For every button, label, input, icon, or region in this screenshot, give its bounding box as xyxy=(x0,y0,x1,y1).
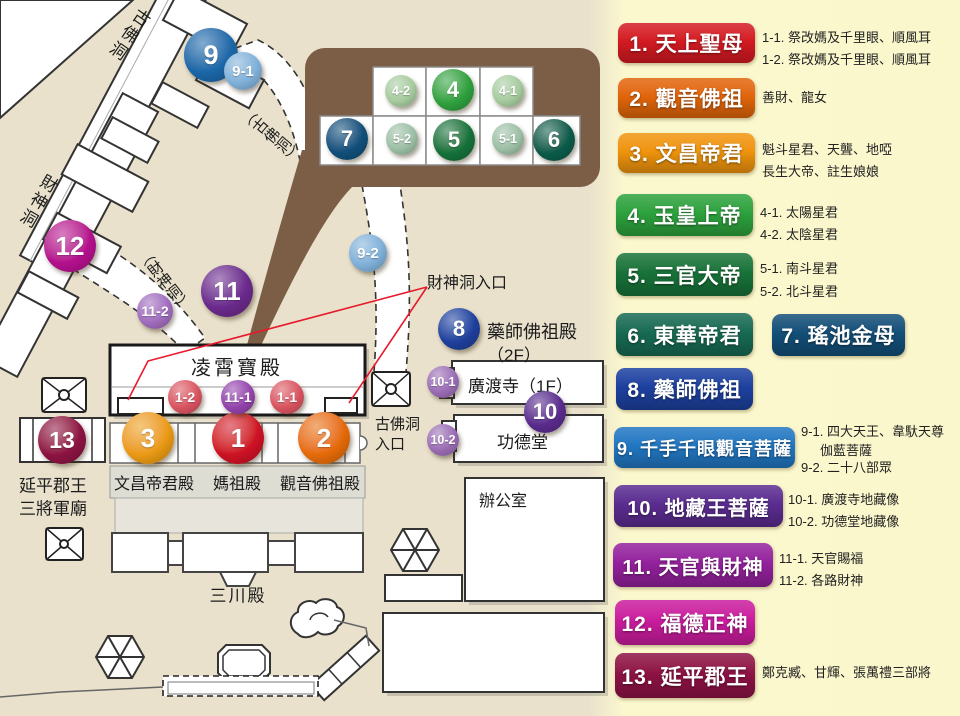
legend-note-9-2: 9-2. 二十八部眾 xyxy=(801,457,892,476)
legend-note-3-1: 魁斗星君、天聾、地啞 xyxy=(762,139,892,158)
legend-note-4-1: 4-1. 太陽星君 xyxy=(760,202,838,221)
legend-note-4-2: 4-2. 太陰星君 xyxy=(760,224,838,243)
lingxiao-hall-label: 凌霄寶殿 xyxy=(191,352,283,381)
sanchuan-hall-building xyxy=(112,533,363,586)
marker-11: 11 xyxy=(201,265,253,317)
marker-10-1: 10-1 xyxy=(427,366,459,398)
legend-item-12: 12. 福德正神 xyxy=(615,600,755,645)
yanping-label-line1: 延平郡王 xyxy=(19,472,87,497)
legend-item-10: 10. 地藏王菩薩 xyxy=(614,485,783,527)
marker-13: 13 xyxy=(38,416,86,464)
marker-9-1: 9-1 xyxy=(224,52,262,90)
marker-4: 4 xyxy=(432,69,474,111)
rock-garden-icon xyxy=(291,599,344,637)
marker-4-2: 4-2 xyxy=(385,75,417,107)
office-label: 辦公室 xyxy=(479,487,527,511)
legend-item-11: 11. 天官與財神 xyxy=(613,543,773,587)
legend-item-13: 13. 延平郡王 xyxy=(615,653,755,698)
legend-item-2: 2. 觀音佛祖 xyxy=(618,78,755,118)
marker-8: 8 xyxy=(438,308,480,350)
marker-11-1: 11-1 xyxy=(221,380,255,414)
marker-5-2: 5-2 xyxy=(386,123,418,155)
marker-11-2: 11-2 xyxy=(137,293,173,329)
caishendong-entrance-label: 財神洞入口 xyxy=(427,269,507,293)
marker-7: 7 xyxy=(326,118,368,160)
mazu-hall-label: 媽祖殿 xyxy=(213,470,261,494)
legend-item-5: 5. 三官大帝 xyxy=(616,253,753,296)
hexagon-umbrella-east xyxy=(391,529,439,571)
legend-note-5-1: 5-1. 南斗星君 xyxy=(760,258,838,277)
marker-6: 6 xyxy=(533,119,575,161)
wenchang-hall-label: 文昌帝君殿 xyxy=(114,470,194,494)
legend-item-6: 6. 東華帝君 xyxy=(616,313,753,356)
legend-note-2: 善財、龍女 xyxy=(762,87,827,106)
temple-map: 古佛洞 財神洞 （古佛洞） （財神洞） 凌霄寶殿 文昌帝君殿 媽祖殿 觀音佛祖殿… xyxy=(0,0,960,716)
legend-note-11-2: 11-2. 各路財神 xyxy=(779,570,863,589)
marker-12: 12 xyxy=(44,220,96,272)
marker-5: 5 xyxy=(433,119,475,161)
legend-note-1-2: 1-2. 祭改媽及千里眼、順風耳 xyxy=(762,49,931,68)
gufodong-entrance-label-line1: 古佛洞 xyxy=(375,413,420,434)
south-pavilion-icon xyxy=(46,528,83,560)
gufodong-entrance-label-line2: 入口 xyxy=(375,433,405,454)
marker-9-2: 9-2 xyxy=(349,234,387,272)
yaoshi-hall-floor-label: （2F） xyxy=(487,341,541,366)
marker-2: 2 xyxy=(298,412,350,464)
map-drawing xyxy=(0,0,960,716)
marker-5-1: 5-1 xyxy=(492,123,524,155)
gufodong-entrance-pavilion-icon xyxy=(372,372,410,406)
hexagon-umbrella-west xyxy=(96,636,144,678)
legend-note-10-2: 10-2. 功德堂地藏像 xyxy=(788,511,899,530)
legend-note-10-1: 10-1. 廣渡寺地藏像 xyxy=(788,489,899,508)
marker-1: 1 xyxy=(212,412,264,464)
marker-1-1: 1-1 xyxy=(270,380,304,414)
legend-note-13: 鄭克臧、甘輝、張萬禮三部將 xyxy=(762,662,931,681)
legend-note-9-1: 9-1. 四大天王、韋馱天尊 xyxy=(801,421,944,440)
marker-4-1: 4-1 xyxy=(492,75,524,107)
marker-3: 3 xyxy=(122,412,174,464)
legend-note-5-2: 5-2. 北斗星君 xyxy=(760,281,838,300)
legend-item-1: 1. 天上聖母 xyxy=(618,23,755,63)
cave-exit-path-band xyxy=(362,185,409,372)
sanchuan-hall-label: 三川殿 xyxy=(210,582,267,607)
legend-note-3-2: 長生大帝、註生娘娘 xyxy=(762,161,879,180)
marker-10-2: 10-2 xyxy=(427,424,459,456)
guangdu-temple-label: 廣渡寺（1F） xyxy=(468,372,573,397)
legend-note-11-1: 11-1. 天官賜福 xyxy=(779,548,863,567)
marker-10: 10 xyxy=(524,391,566,433)
legend-note-1-1: 1-1. 祭改媽及千里眼、順風耳 xyxy=(762,27,931,46)
guanyin-hall-label: 觀音佛祖殿 xyxy=(280,470,360,494)
west-pavilion-icon xyxy=(42,378,86,412)
legend-item-4: 4. 玉皇上帝 xyxy=(616,194,753,236)
yanping-label-line2: 三將軍廟 xyxy=(19,495,87,520)
legend-item-7: 7. 瑤池金母 xyxy=(772,314,905,356)
legend-item-3: 3. 文昌帝君 xyxy=(618,133,755,173)
legend-item-8: 8. 藥師佛祖 xyxy=(616,368,753,410)
legend-item-9: 9. 千手千眼觀音菩薩 xyxy=(614,427,795,468)
marker-1-2: 1-2 xyxy=(168,380,202,414)
